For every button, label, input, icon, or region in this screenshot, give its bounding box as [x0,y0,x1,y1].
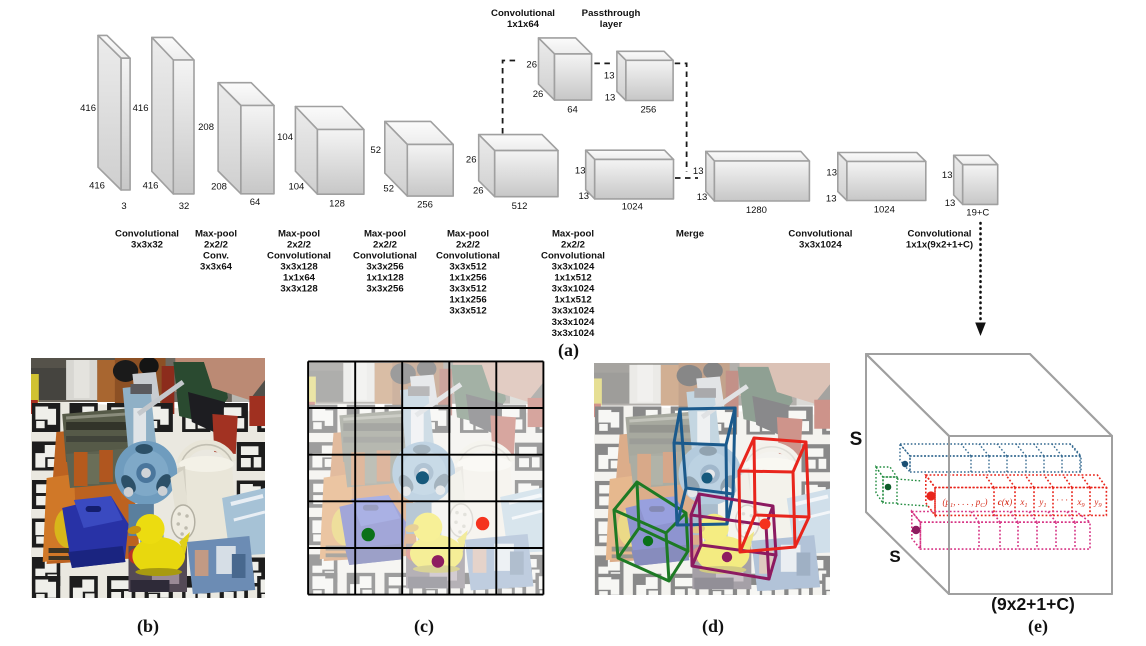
svg-text:512: 512 [512,201,528,212]
svg-text:Convolutional: Convolutional [436,250,500,261]
svg-text:1x1x512: 1x1x512 [554,295,591,306]
svg-text:3: 3 [121,201,126,212]
svg-text:1x1x256: 1x1x256 [449,295,486,306]
svg-text:13: 13 [693,166,704,177]
svg-text:Convolutional: Convolutional [908,228,972,239]
svg-text:· · ·: · · · [1056,495,1067,505]
svg-text:13: 13 [942,170,953,181]
svg-text:Convolutional: Convolutional [491,8,555,19]
svg-text:3x3x1024: 3x3x1024 [552,261,595,272]
svg-text:2x2/2: 2x2/2 [373,239,397,250]
svg-text:1x1x128: 1x1x128 [366,273,404,284]
svg-text:(e): (e) [1028,616,1048,637]
svg-text:1024: 1024 [874,205,895,216]
svg-text:416: 416 [80,103,96,114]
svg-text:3x3x512: 3x3x512 [449,261,486,272]
svg-text:1024: 1024 [622,201,643,212]
svg-text:13: 13 [604,71,615,82]
svg-text:416: 416 [143,181,159,192]
svg-text:13: 13 [697,192,708,203]
svg-text:13: 13 [575,166,586,177]
svg-text:S: S [889,547,900,566]
svg-text:1x1x64: 1x1x64 [507,19,540,30]
svg-text:layer: layer [600,19,623,30]
svg-text:32: 32 [179,201,190,212]
svg-text:S: S [850,429,863,450]
svg-text:13: 13 [826,168,837,179]
svg-text:c(x): c(x) [998,497,1013,507]
svg-text:256: 256 [640,105,656,116]
svg-text:13: 13 [579,191,590,202]
svg-text:52: 52 [370,145,381,156]
svg-text:1x1x(9x2+1+C): 1x1x(9x2+1+C) [906,239,973,250]
svg-text:Max-pool: Max-pool [364,228,406,239]
svg-text:Convolutional: Convolutional [353,250,417,261]
svg-text:104: 104 [277,132,293,143]
svg-text:Convolutional: Convolutional [267,250,331,261]
svg-text:(a): (a) [558,340,579,361]
svg-text:3x3x64: 3x3x64 [200,261,233,272]
svg-text:1x1x256: 1x1x256 [449,273,486,284]
svg-text:2x2/2: 2x2/2 [287,239,311,250]
svg-text:13: 13 [826,193,837,204]
svg-text:3x3x128: 3x3x128 [280,284,318,295]
svg-text:3x3x512: 3x3x512 [449,284,486,295]
svg-text:3x3x1024: 3x3x1024 [799,239,842,250]
svg-text:(b): (b) [137,616,159,637]
svg-text:2x2/2: 2x2/2 [204,239,228,250]
svg-text:(c): (c) [414,616,434,637]
svg-text:Max-pool: Max-pool [195,228,237,239]
svg-text:26: 26 [533,89,544,100]
svg-text:3x3x1024: 3x3x1024 [552,284,595,295]
svg-text:26: 26 [473,185,484,196]
svg-text:Max-pool: Max-pool [278,228,320,239]
svg-text:3x3x256: 3x3x256 [366,284,403,295]
svg-text:Convolutional: Convolutional [115,228,179,239]
svg-text:(d): (d) [702,616,724,637]
svg-text:Convolutional: Convolutional [541,250,605,261]
svg-text:Convolutional: Convolutional [788,228,852,239]
svg-text:3x3x512: 3x3x512 [449,306,486,317]
svg-text:(9x2+1+C): (9x2+1+C) [991,594,1075,614]
svg-text:13: 13 [945,198,956,209]
svg-text:3x3x256: 3x3x256 [366,261,403,272]
svg-text:64: 64 [250,197,261,208]
svg-text:3x3x1024: 3x3x1024 [552,328,595,339]
svg-text:104: 104 [288,182,304,193]
svg-text:3x3x32: 3x3x32 [131,239,163,250]
svg-text:64: 64 [567,105,578,116]
svg-text:208: 208 [198,122,214,133]
svg-text:1x1x512: 1x1x512 [554,273,591,284]
svg-text:13: 13 [605,92,616,103]
svg-text:2x2/2: 2x2/2 [456,239,480,250]
svg-text:208: 208 [211,182,227,193]
svg-text:3x3x1024: 3x3x1024 [552,317,595,328]
svg-text:Max-pool: Max-pool [447,228,489,239]
svg-text:416: 416 [133,103,149,114]
svg-text:Conv.: Conv. [203,250,229,261]
svg-text:26: 26 [526,60,537,71]
svg-text:1x1x64: 1x1x64 [283,273,316,284]
svg-text:26: 26 [466,155,477,166]
svg-text:19+C: 19+C [966,207,989,218]
svg-text:52: 52 [383,183,394,194]
svg-text:Passthrough: Passthrough [582,8,641,19]
svg-text:128: 128 [329,198,345,209]
svg-text:416: 416 [89,181,105,192]
svg-text:Max-pool: Max-pool [552,228,594,239]
svg-text:2x2/2: 2x2/2 [561,239,585,250]
svg-text:Merge: Merge [676,228,704,239]
svg-text:256: 256 [417,199,433,210]
svg-text:3x3x128: 3x3x128 [280,261,318,272]
svg-text:1280: 1280 [746,205,767,216]
svg-text:3x3x1024: 3x3x1024 [552,306,595,317]
